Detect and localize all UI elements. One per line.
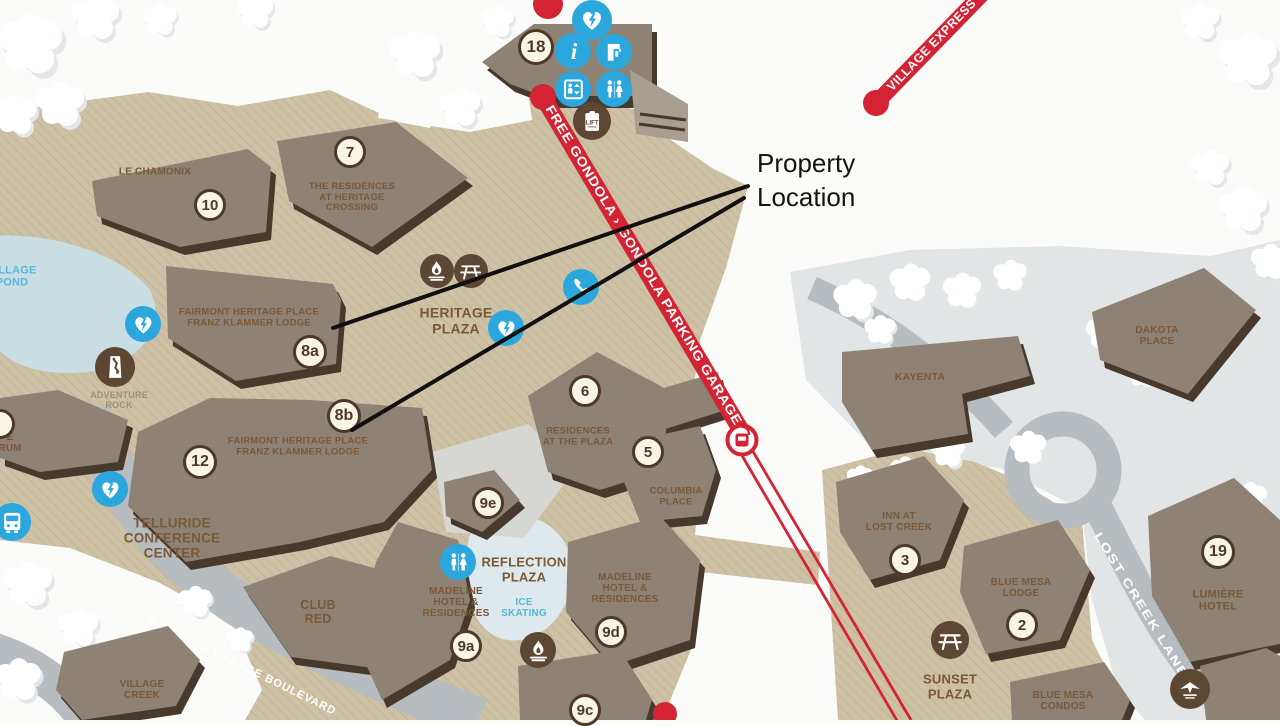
badge-7: 7 — [334, 136, 366, 168]
label-ice-skating: ICESKATING — [501, 597, 547, 619]
badge-9a: 9a — [450, 630, 482, 662]
label-madeline-hotel-residences: MADELINEHOTEL &RESIDENCES — [591, 572, 658, 606]
label-sunset-plaza: SUNSETPLAZA — [923, 672, 977, 701]
badge-5: 5 — [632, 436, 664, 468]
label-village-creek: VILLAGECREEK — [120, 679, 165, 701]
elevator-icon — [555, 71, 591, 107]
label-residences-at-the-plaza: RESIDENCESAT THE PLAZA — [543, 426, 613, 447]
badge-12: 12 — [183, 445, 217, 479]
picnic-table-icon — [931, 621, 969, 659]
info-icon: i — [555, 33, 591, 69]
label-blue-mesa-condos: BLUE MESACONDOS — [1033, 690, 1094, 712]
label-kayenta: KAYENTA — [895, 372, 945, 384]
badge-9e: 9e — [472, 487, 504, 519]
label-columbia-place: COLUMBIAPLACE — [650, 486, 703, 507]
label-adventure-rock: ADVENTUREROCK — [90, 390, 148, 410]
label-telluride-conference-center: TELLURIDECONFERENCECENTER — [124, 515, 221, 560]
village-map: { "title": "Telluride Mountain Village M… — [0, 0, 1280, 720]
badge-6: 6 — [569, 375, 601, 407]
property-location-line1: Property — [757, 146, 855, 180]
trail-marker-icon — [1170, 669, 1210, 709]
label-reflection-plaza: REFLECTIONPLAZA — [481, 555, 566, 584]
aed-heart-icon — [92, 471, 128, 507]
label-lumi-re-hotel: LUMIÈREHOTEL — [1193, 589, 1244, 614]
map-overlay: LE CHAMONIXTHE RESIDENCESAT HERITAGECROS… — [0, 0, 1280, 720]
property-location-line2: Location — [757, 180, 855, 214]
label-the-residences-at-heritage-crossing: THE RESIDENCESAT HERITAGECROSSING — [309, 182, 395, 214]
restroom-icon — [440, 544, 476, 580]
badge-8b: 8b — [327, 399, 361, 433]
badge-9d: 9d — [595, 616, 627, 648]
badge-19: 19 — [1201, 535, 1235, 569]
label-le-chamonix: LE CHAMONIX — [119, 166, 191, 177]
restroom-icon — [596, 71, 632, 107]
badge-3: 3 — [889, 544, 921, 576]
svg-text:i: i — [570, 39, 577, 64]
aed-heart-icon — [125, 306, 161, 342]
bus-stop-icon — [0, 503, 31, 541]
badge-10: 10 — [194, 189, 226, 221]
label-blue-mesa-lodge: BLUE MESALODGE — [991, 577, 1052, 599]
label-dakota-place: DAKOTAPLACE — [1135, 325, 1178, 347]
label-club-red: CLUBRED — [300, 598, 336, 626]
badge-9c: 9c — [569, 694, 601, 726]
svg-text:LIFT: LIFT — [586, 120, 599, 126]
lift-ticket-icon: LIFT — [573, 102, 611, 140]
label-village-pond: VILLAGEPOND — [0, 265, 37, 290]
fire-pit-icon — [420, 254, 454, 288]
label-heritage-plaza: HERITAGEPLAZA — [420, 305, 493, 336]
label-inn-at-lost-creek: INN ATLOST CREEK — [866, 511, 932, 533]
climbing-wall-icon — [95, 347, 135, 387]
picnic-table-icon — [454, 254, 488, 288]
label-fairmont-heritage-place-franz-klammer-lodge: FAIRMONT HERITAGE PLACEFRANZ KLAMMER LOD… — [228, 436, 368, 457]
badge-2: 2 — [1006, 609, 1038, 641]
badge-18: 18 — [518, 29, 554, 65]
aed-heart-icon — [488, 310, 524, 346]
drinking-fountain-icon — [596, 34, 632, 70]
fire-pit-icon — [520, 632, 556, 668]
label-fairmont-heritage-place-franz-klammer-lodge: FAIRMONT HERITAGE PLACEFRANZ KLAMMER LOD… — [179, 307, 319, 328]
badge-8a: 8a — [293, 335, 327, 369]
property-location-annotation: Property Location — [757, 146, 855, 215]
phone-icon — [563, 269, 599, 305]
label-madeline-hotel-residences: MADELINEHOTEL &RESIDENCES — [422, 586, 489, 620]
